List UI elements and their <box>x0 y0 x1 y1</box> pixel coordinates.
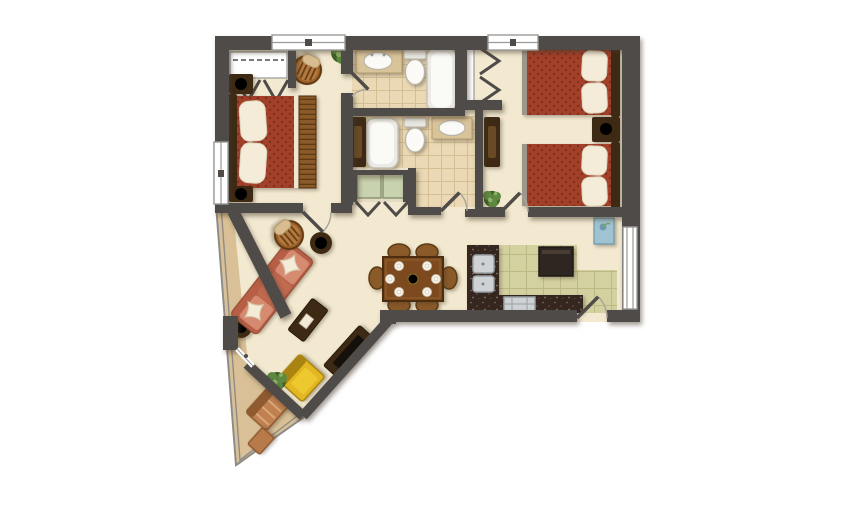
bedroom2-bed-1 <box>522 46 620 117</box>
place-setting <box>395 262 404 271</box>
window-master-left <box>214 142 228 204</box>
bed-pillow <box>581 145 607 175</box>
entry-wall-art <box>594 218 614 244</box>
bed-pillow <box>581 82 608 113</box>
bedroom2-bed-2 <box>522 142 620 208</box>
master-nightstand-bottom <box>229 186 253 202</box>
bedroom2-nightstand <box>592 117 620 142</box>
window-bedroom2-top <box>488 35 538 50</box>
window-master-top <box>272 35 345 50</box>
bathroom1-toilet <box>404 50 426 85</box>
floor-plan-svg: Two Bedroom, Two Bath Suite Floor Plan <box>0 0 853 530</box>
refrigerator-handle <box>542 250 570 254</box>
nightstand-lamp <box>233 186 249 202</box>
place-setting <box>386 275 395 284</box>
bathroom2-toilet <box>404 118 426 152</box>
washer <box>357 174 381 198</box>
bathroom2-vanity-sink <box>432 118 472 139</box>
nightstand-lamp <box>598 121 614 137</box>
dresser-door <box>488 126 496 158</box>
master-nightstand-top <box>229 74 253 94</box>
bed-pillow <box>239 100 268 142</box>
bathroom2-bathtub <box>366 118 398 168</box>
nightstand-lamp <box>233 76 249 92</box>
linen-cabinet-door <box>354 126 362 158</box>
kitchen-range <box>504 297 535 311</box>
bathroom1-bathtub <box>427 48 456 112</box>
window-entry-right <box>623 227 637 309</box>
table-lamp <box>313 235 329 251</box>
bed-pillow <box>581 176 607 206</box>
bathroom-1 <box>352 48 462 112</box>
place-setting <box>423 288 432 297</box>
bathroom1-vanity-sink <box>356 50 402 73</box>
kitchen-double-sink <box>473 255 494 292</box>
master-bed <box>228 94 316 190</box>
floor-plan-canvas: Two Bedroom, Two Bath Suite Floor Plan <box>0 0 853 530</box>
end-table-upper <box>310 232 332 254</box>
place-setting <box>423 262 432 271</box>
place-setting <box>432 275 441 284</box>
bed-pillow <box>239 142 268 184</box>
table-centerpiece <box>408 274 418 284</box>
bed-pillow <box>581 50 608 81</box>
place-setting <box>395 288 404 297</box>
